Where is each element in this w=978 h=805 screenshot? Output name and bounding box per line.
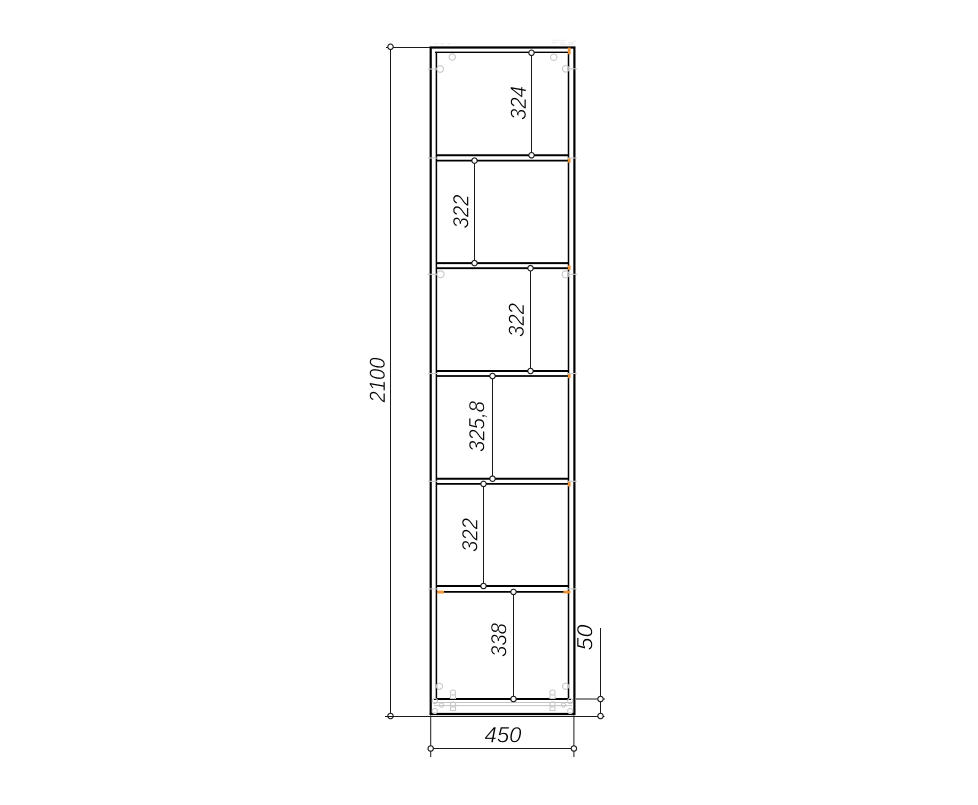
- svg-text:2100: 2100: [365, 357, 390, 404]
- svg-text:322: 322: [449, 195, 474, 229]
- svg-text:325,8: 325,8: [465, 400, 490, 452]
- svg-text:450: 450: [485, 723, 523, 748]
- svg-text:322: 322: [504, 303, 529, 337]
- svg-text:50: 50: [573, 624, 598, 651]
- svg-text:324: 324: [506, 86, 531, 120]
- svg-text:338: 338: [487, 622, 512, 657]
- svg-text:322: 322: [458, 518, 483, 552]
